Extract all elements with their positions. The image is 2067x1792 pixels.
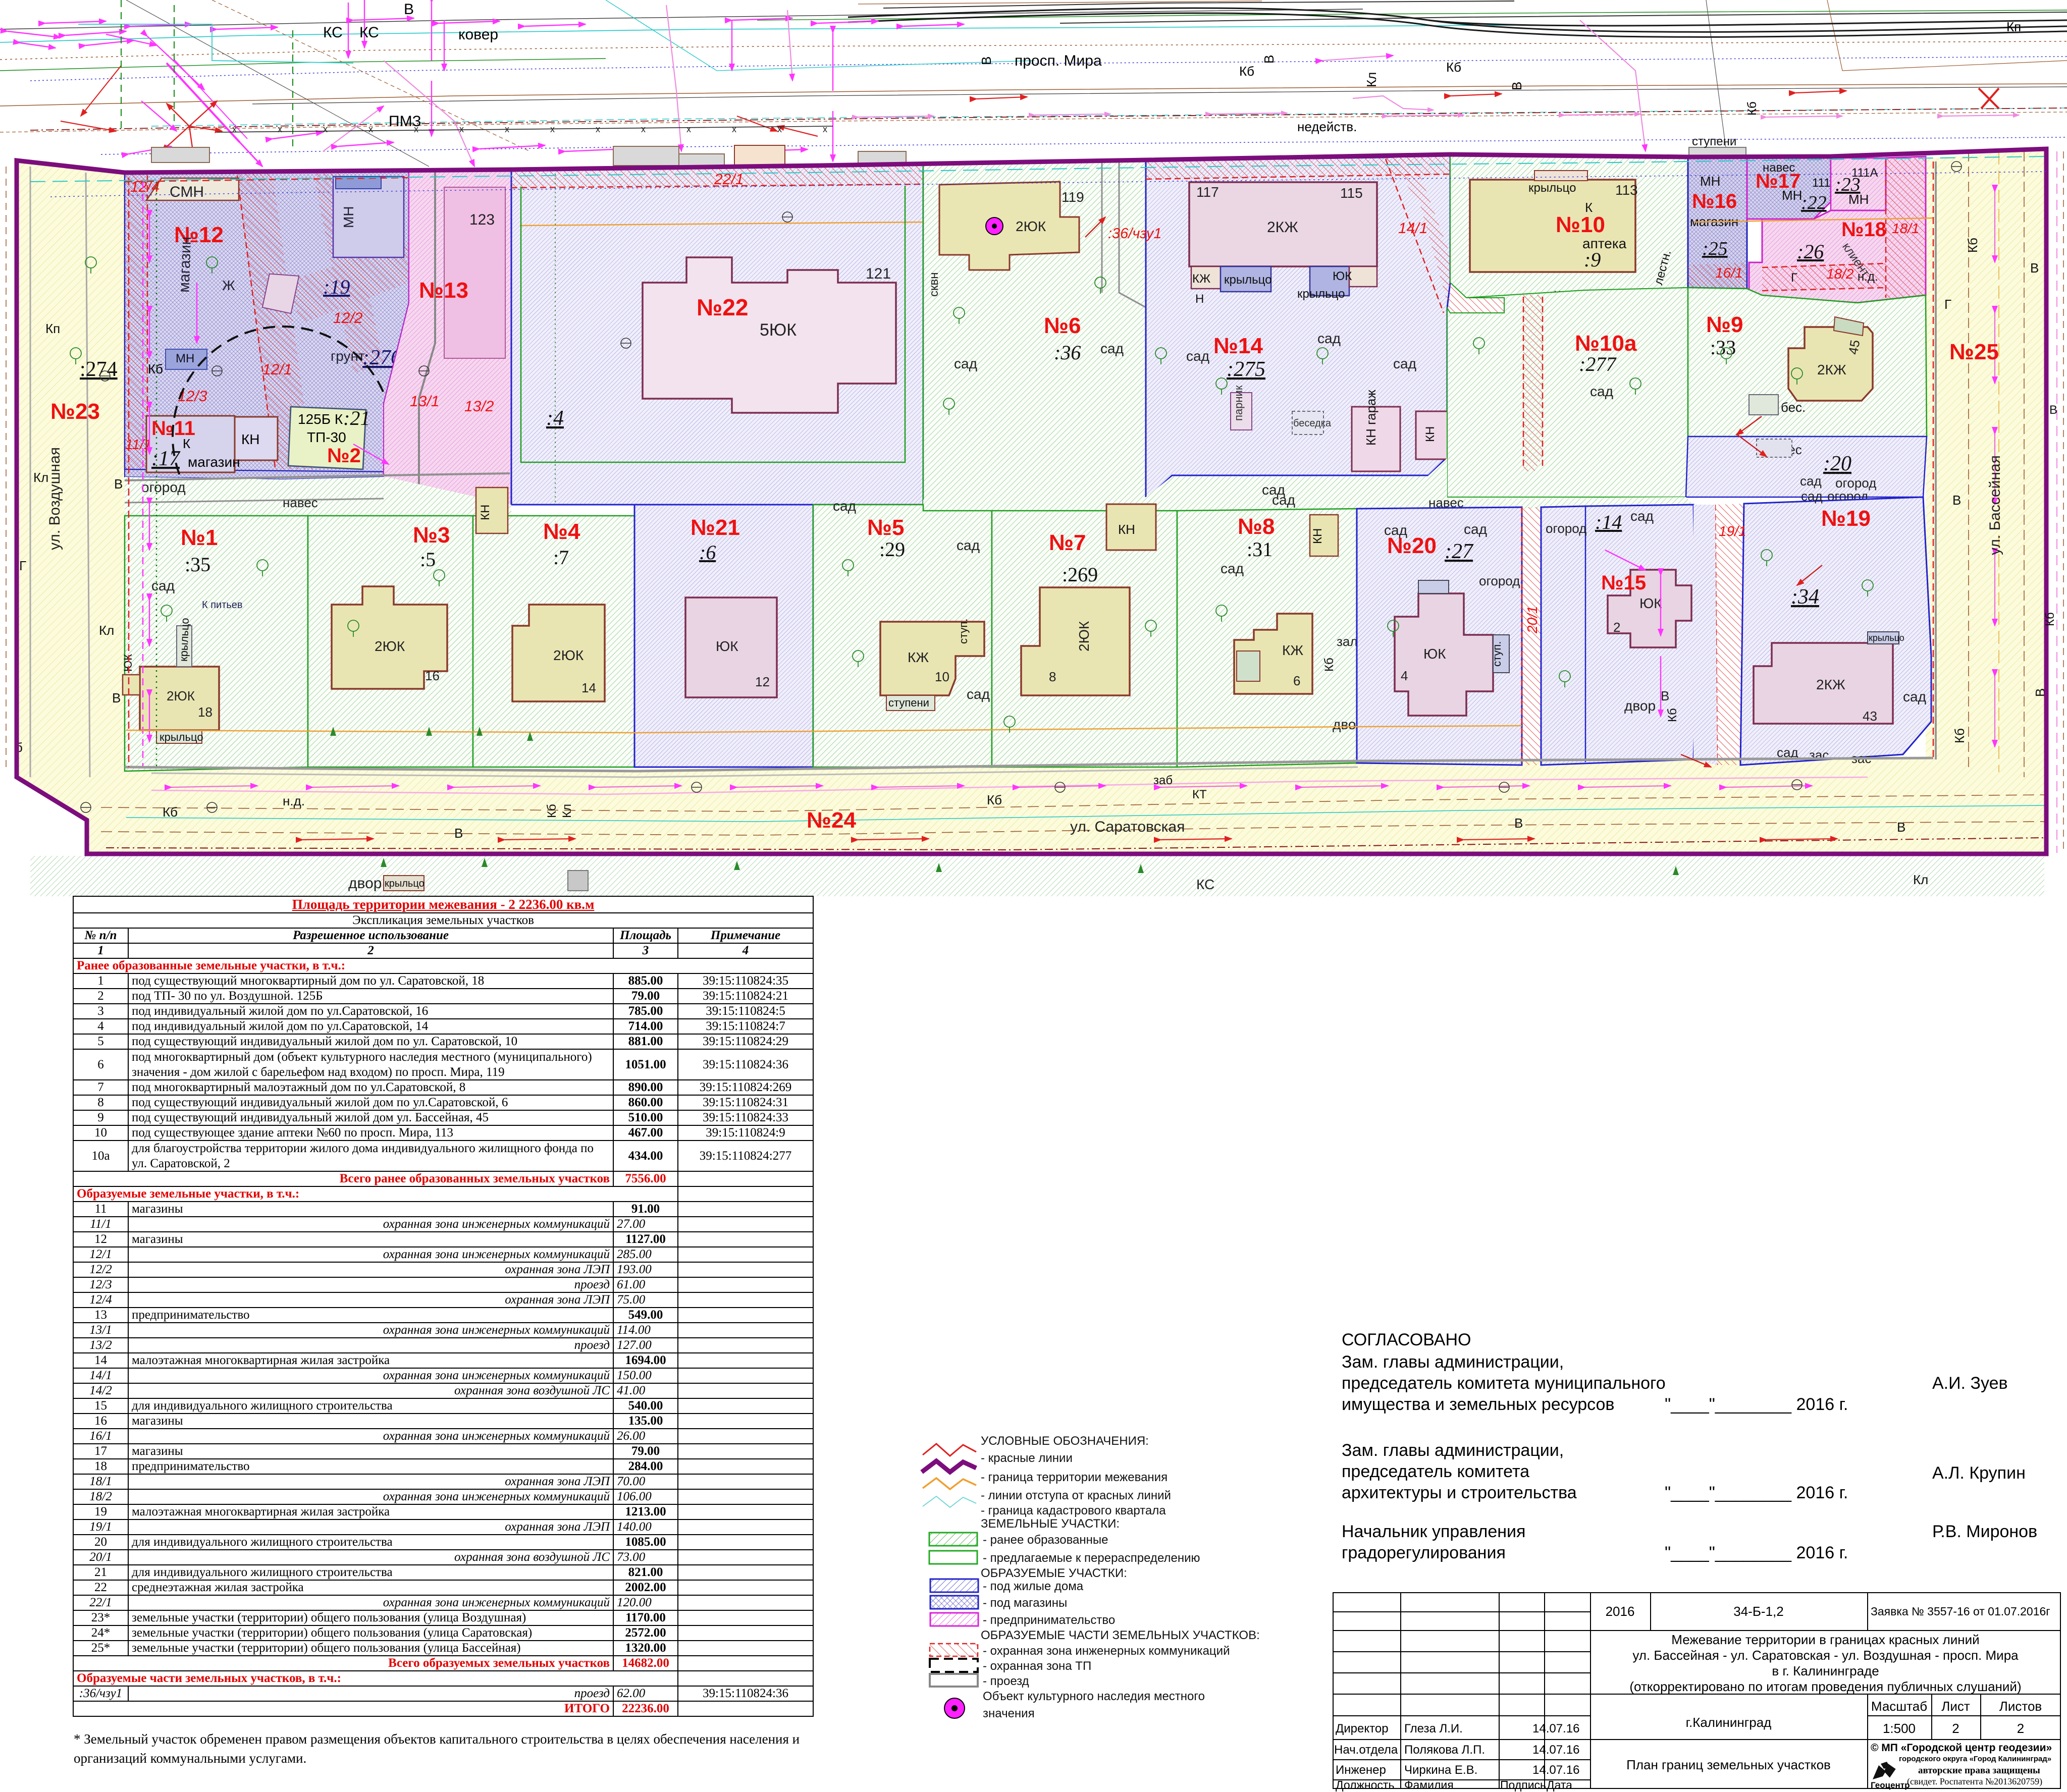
svg-text:№19: №19 (1821, 506, 1871, 531)
svg-text:СМН: СМН (170, 184, 204, 200)
svg-text:сад: сад (1590, 384, 1613, 399)
svg-text:113: 113 (1615, 182, 1638, 198)
svg-text:117: 117 (1196, 184, 1219, 200)
svg-text::20: :20 (1823, 452, 1851, 475)
svg-text:Кб: Кб (148, 361, 163, 376)
svg-text:В: В (404, 1, 414, 18)
svg-text:В: В (1261, 55, 1277, 64)
svg-text:119: 119 (1062, 189, 1084, 205)
svg-text:№10: №10 (1556, 212, 1605, 237)
svg-text:ул. Саратовская: ул. Саратовская (1070, 819, 1185, 835)
svg-text:сад: сад (151, 578, 175, 593)
svg-text:н.д.: н.д. (283, 793, 305, 808)
svg-text:12/4: 12/4 (130, 179, 160, 195)
svg-text:19/1: 19/1 (1719, 523, 1746, 539)
svg-text:КТ: КТ (1192, 788, 1207, 801)
svg-text:В: В (1661, 688, 1669, 703)
svg-text:В: В (2030, 260, 2039, 276)
svg-text:x: x (459, 124, 464, 134)
svg-text:парник: парник (1232, 385, 1245, 421)
svg-text:№2: №2 (327, 445, 361, 467)
svg-text:№13: №13 (419, 278, 468, 303)
svg-text:ЮК: ЮК (1423, 646, 1446, 662)
svg-text:№21: №21 (691, 515, 740, 540)
svg-text:просп. Мира: просп. Мира (1015, 52, 1102, 69)
svg-text:бес.: бес. (1781, 400, 1806, 415)
svg-text:крыльцо: крыльцо (1297, 287, 1345, 301)
svg-text:сад: сад (957, 537, 980, 553)
svg-text:КН гараж: КН гараж (1363, 390, 1379, 446)
svg-text:№7: №7 (1049, 530, 1086, 555)
svg-text:КЖ: КЖ (1192, 272, 1210, 286)
svg-text:8: 8 (1049, 669, 1056, 684)
svg-text:Кб: Кб (1952, 728, 1967, 743)
svg-text:Кб: Кб (1446, 60, 1461, 75)
svg-text::14: :14 (1595, 511, 1622, 533)
svg-text::22: :22 (1801, 192, 1827, 213)
svg-text:10: 10 (935, 669, 949, 684)
svg-text:ул. Воздушная: ул. Воздушная (46, 447, 63, 550)
svg-text:В: В (1952, 493, 1961, 508)
svg-text:МН: МН (1700, 174, 1720, 189)
svg-text:18/2: 18/2 (1826, 266, 1854, 282)
svg-text:навес: навес (1763, 161, 1795, 175)
svg-text:навес: навес (283, 495, 318, 510)
svg-text:x: x (777, 124, 782, 134)
svg-text:5ЮК: 5ЮК (760, 320, 797, 340)
svg-text:В: В (1509, 82, 1524, 90)
svg-text:Кл: Кл (560, 804, 574, 818)
svg-text:зал: зал (1337, 634, 1358, 649)
svg-text:13/1: 13/1 (410, 393, 439, 410)
svg-text:крыльцо: крыльцо (1224, 273, 1271, 287)
svg-text::5: :5 (420, 548, 436, 571)
svg-text:зас: зас (1809, 747, 1829, 763)
svg-text:огород: огород (141, 479, 186, 495)
svg-text:x: x (596, 124, 600, 134)
svg-text:№25: №25 (1949, 340, 1999, 364)
svg-text:№5: №5 (867, 515, 905, 540)
svg-text:КН: КН (1118, 522, 1135, 537)
svg-text:грунт: грунт (331, 348, 365, 364)
svg-text:сад: сад (1186, 348, 1209, 364)
svg-text:18/1: 18/1 (1892, 221, 1920, 236)
svg-text:111: 111 (1812, 176, 1830, 190)
svg-text:ЮК: ЮК (122, 654, 134, 672)
svg-text:сад: сад (1100, 341, 1124, 356)
svg-text::19: :19 (323, 276, 350, 298)
svg-text:огород: огород (1546, 521, 1586, 536)
svg-text:Кп: Кп (45, 321, 60, 336)
svg-text:КН: КН (479, 505, 492, 520)
svg-text:Кб: Кб (2043, 612, 2057, 626)
svg-text:x: x (686, 124, 691, 134)
svg-text:Г: Г (19, 558, 26, 573)
svg-text:2КЖ: 2КЖ (1817, 362, 1846, 377)
svg-text:12/2: 12/2 (333, 310, 363, 327)
svg-text:18: 18 (198, 704, 213, 720)
svg-text:Кб: Кб (163, 804, 178, 820)
svg-text:ЮК: ЮК (1333, 269, 1352, 283)
svg-text:ПМЗ: ПМЗ (389, 113, 421, 130)
svg-text:№24: №24 (807, 808, 857, 833)
svg-text:Кл: Кл (1913, 872, 1928, 887)
svg-text::35: :35 (185, 553, 210, 576)
svg-text:КЖ: КЖ (908, 649, 929, 665)
svg-text:сад: сад (1221, 561, 1244, 576)
svg-text:x: x (323, 124, 328, 134)
svg-text:крыльцо: крыльцо (177, 618, 191, 662)
svg-text:беседка: беседка (1293, 418, 1332, 429)
svg-text:№16: №16 (1692, 190, 1737, 212)
svg-text:КН: КН (1311, 528, 1324, 544)
svg-text:14: 14 (581, 680, 596, 695)
svg-text::36/чзу1: :36/чзу1 (1108, 226, 1162, 242)
svg-text:ЮК: ЮК (1639, 595, 1662, 611)
svg-text::33: :33 (1710, 336, 1736, 359)
svg-text::34: :34 (1791, 585, 1819, 609)
svg-text:МН: МН (341, 206, 356, 228)
svg-text:Кп: Кп (2006, 19, 2021, 34)
svg-text:крыльцо: крыльцо (1869, 633, 1904, 643)
svg-text:115: 115 (1340, 185, 1363, 201)
svg-text:ТП-30: ТП-30 (307, 429, 346, 445)
svg-text:2КЖ: 2КЖ (1816, 677, 1845, 692)
svg-text:№3: №3 (413, 523, 450, 548)
svg-text:недейств.: недейств. (1297, 119, 1357, 134)
svg-text:магазин: магазин (176, 236, 194, 293)
svg-text:x: x (550, 124, 555, 134)
svg-text::277: :277 (1579, 353, 1617, 375)
svg-text:№23: №23 (50, 399, 100, 424)
svg-text:сад: сад (833, 498, 856, 514)
svg-text:ступ.: ступ. (957, 619, 970, 644)
svg-text:121: 121 (866, 265, 891, 282)
svg-text:крыльцо: крыльцо (385, 878, 425, 889)
svg-text:КС: КС (323, 24, 343, 41)
svg-text:крыльцо: крыльцо (160, 731, 203, 743)
svg-text:№6: №6 (1044, 313, 1081, 338)
svg-text:двор: двор (348, 875, 382, 892)
svg-text:125Б К: 125Б К (298, 411, 343, 427)
svg-text:В: В (454, 826, 463, 841)
svg-text::36: :36 (1054, 341, 1081, 364)
svg-text:2: 2 (1613, 620, 1620, 635)
svg-text:№14: №14 (1213, 334, 1263, 358)
svg-text:В: В (114, 476, 123, 492)
svg-text:ступени: ступени (888, 696, 929, 709)
svg-text:В: В (2049, 403, 2057, 417)
svg-text:111А: 111А (1851, 166, 1878, 180)
svg-text:№1: №1 (181, 525, 218, 550)
svg-text:20/1: 20/1 (1524, 606, 1540, 634)
svg-text:В: В (112, 690, 121, 705)
svg-text::31: :31 (1247, 538, 1273, 561)
svg-text:2ЮК: 2ЮК (167, 688, 195, 703)
svg-text:КН: КН (241, 431, 260, 447)
svg-text:огород: огород (1835, 475, 1876, 491)
svg-text::29: :29 (879, 538, 905, 561)
svg-text:2ЮК: 2ЮК (553, 647, 584, 663)
svg-text:2ЮК: 2ЮК (375, 638, 405, 654)
svg-text:Ж: Ж (222, 278, 235, 293)
svg-text:сад: сад (1903, 689, 1926, 704)
svg-text:x: x (732, 124, 736, 134)
svg-text:сад: сад (1317, 331, 1341, 346)
svg-text:2ЮК: 2ЮК (1016, 219, 1046, 234)
svg-text:МН: МН (176, 352, 194, 365)
svg-text:Кб: Кб (1322, 658, 1336, 672)
svg-text:45: 45 (1845, 339, 1863, 356)
svg-text:заб: заб (1153, 774, 1173, 787)
svg-text:н.д.: н.д. (1858, 270, 1878, 284)
svg-text:x: x (641, 124, 646, 134)
svg-text:сад: сад (1800, 473, 1822, 488)
svg-text:№18: №18 (1841, 219, 1886, 241)
svg-text:№9: №9 (1706, 312, 1743, 337)
svg-text::269: :269 (1062, 563, 1098, 586)
svg-text:16: 16 (425, 668, 440, 683)
svg-text:крыльцо: крыльцо (1528, 181, 1576, 195)
svg-text:Кл: Кл (33, 470, 48, 485)
svg-text:14/1: 14/1 (1398, 220, 1427, 237)
svg-text:43: 43 (1863, 709, 1877, 724)
svg-text::9: :9 (1584, 248, 1601, 271)
svg-text:16/1: 16/1 (1715, 265, 1743, 281)
svg-text:x: x (823, 124, 827, 134)
svg-text:ступ.: ступ. (1491, 641, 1503, 667)
svg-text:МН: МН (1848, 192, 1869, 207)
svg-text:КС: КС (359, 24, 379, 41)
svg-text:КС: КС (1196, 877, 1214, 892)
svg-text:x: x (368, 124, 373, 134)
svg-text:ковер: ковер (458, 26, 498, 43)
svg-text:К: К (183, 436, 190, 451)
svg-text:ЮК: ЮК (716, 638, 738, 654)
svg-text:123: 123 (469, 211, 495, 228)
svg-text::21: :21 (343, 407, 370, 429)
svg-text:Кб: Кб (1745, 101, 1759, 116)
svg-text::6: :6 (699, 541, 716, 564)
svg-text:сквн: сквн (927, 272, 941, 297)
svg-text::26: :26 (1797, 240, 1824, 263)
svg-text:сад: сад (967, 686, 990, 702)
svg-text:Кб: Кб (545, 804, 559, 818)
svg-text:Г: Г (1791, 271, 1797, 285)
svg-text:12/1: 12/1 (262, 361, 292, 378)
svg-text:магазин: магазин (188, 454, 240, 470)
svg-text:2ЮК: 2ЮК (1076, 621, 1092, 651)
svg-text:Кб: Кб (1965, 238, 1980, 253)
svg-text:x: x (278, 124, 282, 134)
svg-text:ступени: ступени (1692, 135, 1736, 148)
svg-text:№8: №8 (1238, 514, 1275, 539)
svg-text:№4: №4 (543, 519, 580, 544)
svg-text::7: :7 (553, 546, 569, 569)
svg-text:Кб: Кб (1666, 708, 1679, 722)
svg-text::27: :27 (1445, 540, 1474, 563)
svg-text:сад: сад (1262, 482, 1285, 498)
svg-text::275: :275 (1227, 358, 1265, 381)
svg-text:Кб: Кб (987, 792, 1002, 807)
svg-text:сад: сад (1464, 521, 1487, 537)
svg-text:сад: сад (1393, 356, 1416, 371)
svg-text:ул. Бассейная: ул. Бассейная (1987, 455, 2003, 555)
svg-text:В: В (1514, 816, 1523, 831)
svg-text:x: x (232, 124, 237, 134)
svg-text:КН: КН (1423, 426, 1437, 442)
svg-text:К питьев: К питьев (202, 600, 243, 611)
svg-text:6: 6 (1293, 673, 1300, 688)
svg-text:№22: №22 (697, 294, 748, 320)
svg-text:КЖ: КЖ (1282, 642, 1303, 658)
svg-text:12: 12 (755, 674, 770, 689)
svg-text:Кл: Кл (99, 623, 114, 638)
svg-text:сад: сад (1801, 488, 1823, 504)
svg-text:№10а: №10а (1575, 331, 1637, 356)
svg-text:4: 4 (1401, 668, 1408, 683)
svg-text:Кл: Кл (1364, 72, 1379, 87)
svg-text:Кб: Кб (1239, 64, 1254, 79)
svg-text:Н: Н (1195, 292, 1204, 306)
svg-text:В: В (979, 57, 994, 65)
svg-text::274: :274 (80, 358, 118, 381)
svg-text:13/2: 13/2 (464, 398, 494, 415)
svg-text:№15: №15 (1601, 572, 1646, 594)
svg-text:x: x (505, 124, 509, 134)
svg-text:сад: сад (954, 356, 977, 371)
svg-text:Г: Г (1944, 297, 1951, 312)
svg-text:В: В (1897, 820, 1905, 835)
svg-text:сад: сад (1630, 508, 1654, 524)
svg-text::25: :25 (1702, 238, 1728, 259)
svg-text:сад: сад (1384, 522, 1407, 538)
svg-text:двор: двор (1624, 698, 1656, 714)
svg-text:МН: МН (1782, 188, 1802, 203)
svg-text:огород: огород (1479, 573, 1520, 588)
svg-text:2КЖ: 2КЖ (1267, 219, 1298, 236)
